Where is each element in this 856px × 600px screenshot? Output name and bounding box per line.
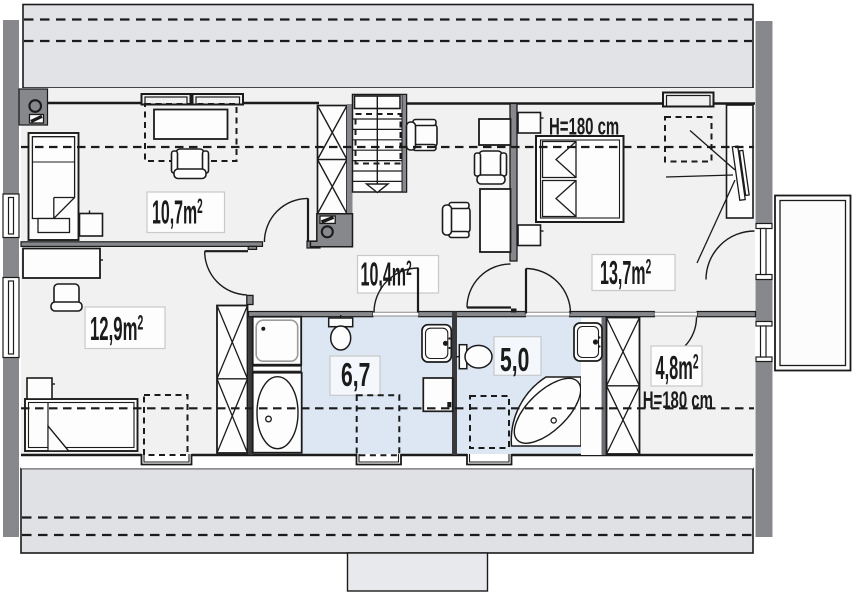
svg-text:6,7: 6,7 <box>341 356 370 393</box>
svg-text:5,0: 5,0 <box>500 341 529 378</box>
svg-text:H=180 cm: H=180 cm <box>643 387 713 414</box>
svg-text:10,7m2: 10,7m2 <box>152 193 203 231</box>
svg-text:10,4m2: 10,4m2 <box>361 255 412 293</box>
svg-text:H=180 cm: H=180 cm <box>549 114 619 141</box>
svg-text:12,9m2: 12,9m2 <box>90 310 143 348</box>
svg-text:13,7m2: 13,7m2 <box>600 253 651 291</box>
svg-text:4,8m2: 4,8m2 <box>656 349 699 387</box>
